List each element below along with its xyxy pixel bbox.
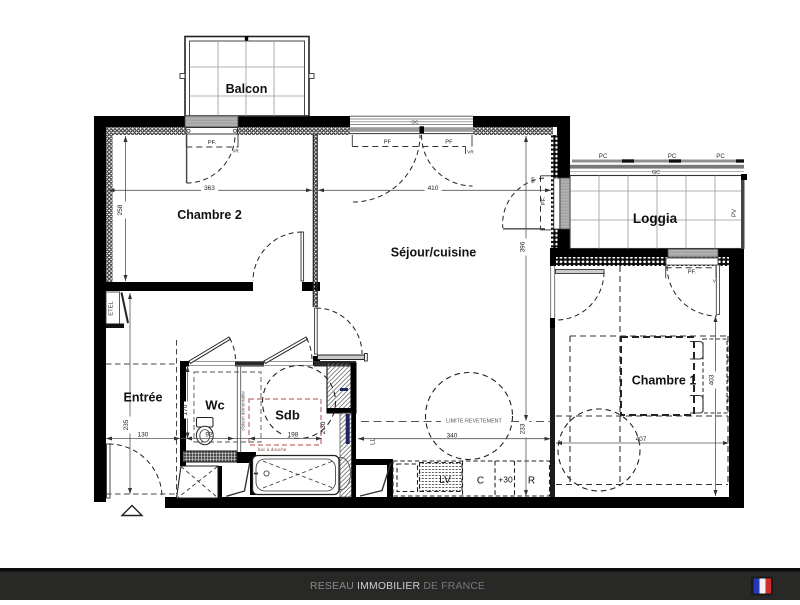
svg-text:LIMITE REVETEMENT: LIMITE REVETEMENT: [446, 419, 502, 425]
svg-text:Séjour/cuisine: Séjour/cuisine: [391, 246, 476, 260]
svg-text:130: 130: [138, 431, 149, 438]
svg-text:PC: PC: [668, 153, 677, 160]
svg-text:+30: +30: [498, 475, 513, 485]
svg-text:Chambre 1: Chambre 1: [632, 374, 697, 388]
svg-text:C: C: [477, 476, 484, 487]
svg-text:Entrée: Entrée: [124, 391, 163, 405]
svg-text:PF.: PF.: [208, 140, 217, 146]
svg-text:PF.: PF.: [688, 270, 697, 276]
svg-text:PF.: PF.: [541, 196, 547, 205]
svg-text:396: 396: [519, 241, 526, 252]
svg-text:PC: PC: [599, 153, 608, 160]
svg-text:235: 235: [123, 419, 130, 430]
svg-text:GC: GC: [411, 120, 419, 126]
svg-text:bac à douche: bac à douche: [258, 447, 287, 453]
svg-text:233: 233: [519, 423, 526, 434]
svg-text:92: 92: [205, 431, 213, 438]
svg-text:2.30: 2.30: [320, 421, 327, 434]
svg-text:Loggia: Loggia: [633, 211, 678, 226]
svg-text:Sdb: Sdb: [275, 408, 300, 423]
svg-text:Balcon: Balcon: [226, 82, 268, 96]
svg-text:RESEAU IMMOBILIER DE FRANCE: RESEAU IMMOBILIER DE FRANCE: [310, 581, 485, 592]
svg-text:403: 403: [708, 374, 715, 385]
svg-text:R: R: [528, 476, 535, 487]
svg-text:170: 170: [182, 404, 189, 415]
svg-text:ETEL: ETEL: [109, 300, 115, 315]
svg-text:Wc: Wc: [205, 398, 225, 413]
svg-text:GC: GC: [652, 170, 660, 176]
svg-text:407: 407: [636, 436, 647, 443]
svg-text:198: 198: [288, 431, 299, 438]
svg-text:cloison démontable: cloison démontable: [241, 391, 246, 431]
svg-text:LV: LV: [439, 475, 451, 486]
svg-text:VR: VR: [232, 149, 239, 154]
svg-text:258: 258: [117, 204, 124, 215]
svg-text:410: 410: [428, 185, 439, 192]
svg-text:PV: PV: [732, 209, 738, 217]
svg-text:340: 340: [447, 432, 458, 439]
svg-text:VR: VR: [467, 150, 474, 155]
svg-text:PF: PF: [384, 140, 392, 146]
svg-text:PC: PC: [716, 153, 725, 160]
svg-text:363: 363: [204, 185, 215, 192]
svg-text:LL: LL: [371, 438, 377, 445]
svg-text:PF: PF: [445, 140, 453, 146]
svg-text:Chambre 2: Chambre 2: [177, 208, 242, 222]
